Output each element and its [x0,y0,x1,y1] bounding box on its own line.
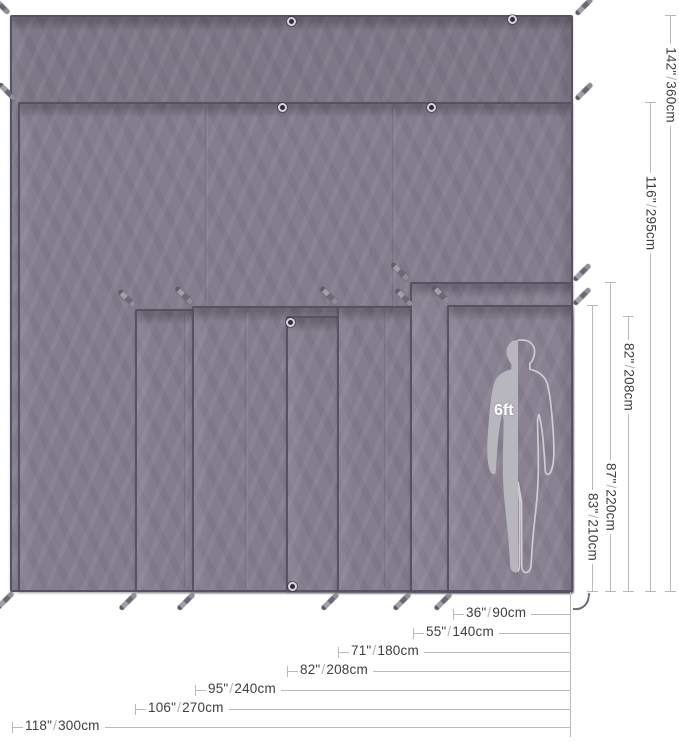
dimension-tick [135,704,136,715]
stake-icon [574,0,593,16]
dimension-tick [623,591,634,592]
dim-cm: 360cm [664,81,679,123]
stake-icon [433,592,452,611]
dimension-tick [453,609,454,620]
grommet-icon [278,103,287,112]
width-dimension: 118"/300cm [12,721,570,733]
person-silhouette [466,338,570,576]
dimension-label-text: 55"/140cm [426,624,494,639]
dim-inches: 55" [426,624,446,639]
dimension-tick [605,282,616,283]
stake-icon [176,592,195,611]
grommet-icon [287,17,296,26]
dimension-label-text: 116"/295cm [644,176,659,251]
width-dimension: 82"/208cm [287,665,570,677]
stake-icon [572,287,591,306]
stake-icon [572,263,591,282]
dimension-tick [413,628,414,639]
dimension-label: 82"/208cm [620,340,639,414]
dim-inches: 82" [622,343,637,363]
dim-inches: 142" [664,47,679,75]
dim-inches: 36" [466,605,486,620]
dimension-label-text: 71"/180cm [351,643,419,658]
height-dimension: 83"/210cm [586,305,598,592]
dimension-tick [195,685,196,696]
dimension-label: 106"/270cm [146,700,229,717]
dim-cm: 208cm [622,369,637,411]
dimension-label-text: 142"/360cm [664,47,679,123]
width-dimension: 71"/180cm [338,646,570,658]
dimension-label-text: 36"/90cm [466,605,526,620]
dim-cm: 90cm [492,605,526,620]
dimension-tick [665,15,676,16]
silhouette-outline-half [487,340,554,572]
dimension-tick [587,305,598,306]
dimension-tick [623,316,634,317]
stake-icon [320,592,339,611]
dimension-label-text: 82"/208cm [300,662,368,677]
person-height-label: 6ft [494,402,514,420]
dim-inches: 106" [148,700,176,715]
dimension-connector-line [570,592,571,737]
grommet-icon [508,15,517,24]
dimension-label: 83"/210cm [584,490,603,564]
height-dimension: 116"/295cm [644,102,656,592]
grommet-icon [286,318,295,327]
dimension-line [610,282,611,592]
dimension-tick [287,666,288,677]
tarp-seam [184,314,187,587]
dimension-tick [338,647,339,658]
stake-icon [574,82,593,101]
corner-hook-icon [573,591,590,612]
stake-icon [392,592,411,611]
dim-cm: 210cm [586,519,601,561]
dimension-label: 71"/180cm [349,643,424,660]
width-dimension: 95"/240cm [195,684,570,696]
dimension-tick [665,591,676,592]
dimension-label-text: 87"/220cm [604,463,619,531]
dimension-tick [605,591,616,592]
height-dimension: 87"/220cm [604,282,616,592]
dim-cm: 208cm [326,662,368,677]
dimension-label: 142"/360cm [662,44,679,126]
width-dimension: 106"/270cm [135,703,570,715]
tarp-seam [384,311,387,587]
dim-inches: 87" [604,463,619,483]
stake-icon [118,592,137,611]
dim-cm: 140cm [452,624,494,639]
grommet-icon [288,582,297,591]
dimension-label: 87"/220cm [602,460,621,534]
tarp-size-diagram: 6ft 142"/360cm116"/295cm82"/208cm87"/220… [0,0,679,743]
dim-inches: 83" [586,493,601,513]
dimension-tick [12,722,13,733]
height-dimension: 82"/208cm [622,316,634,592]
dim-cm: 220cm [604,489,619,531]
dim-inches: 95" [208,681,228,696]
dimension-tick [587,591,598,592]
height-dimension: 142"/360cm [664,15,676,592]
width-dimension: 55"/140cm [413,627,570,639]
dimension-tick [645,591,656,592]
dimension-label-text: 118"/300cm [25,718,100,733]
dimension-tick [645,102,656,103]
stake-icon [0,591,15,610]
dimension-label: 55"/140cm [424,624,499,641]
dim-inches: 71" [351,643,371,658]
dimension-label: 118"/300cm [23,718,105,735]
dimension-label-text: 83"/210cm [586,493,601,561]
dim-cm: 270cm [182,700,224,715]
grommet-icon [427,103,436,112]
dimension-label: 95"/240cm [206,681,281,698]
dim-inches: 116" [644,176,659,203]
dim-cm: 295cm [644,209,659,251]
dimension-label-text: 106"/270cm [148,700,224,715]
dimension-label: 82"/208cm [298,662,373,679]
dimension-label-text: 82"/208cm [622,343,637,411]
stake-icon [0,0,11,15]
dim-inches: 118" [25,718,52,733]
dimension-label-text: 95"/240cm [208,681,276,696]
tarp-seam [245,311,248,587]
dim-cm: 300cm [58,718,100,733]
width-dimension: 36"/90cm [453,608,570,620]
dimension-label: 36"/90cm [464,605,531,622]
dim-inches: 82" [300,662,320,677]
dim-cm: 240cm [234,681,276,696]
dimension-label: 116"/295cm [642,173,661,254]
dim-cm: 180cm [377,643,419,658]
